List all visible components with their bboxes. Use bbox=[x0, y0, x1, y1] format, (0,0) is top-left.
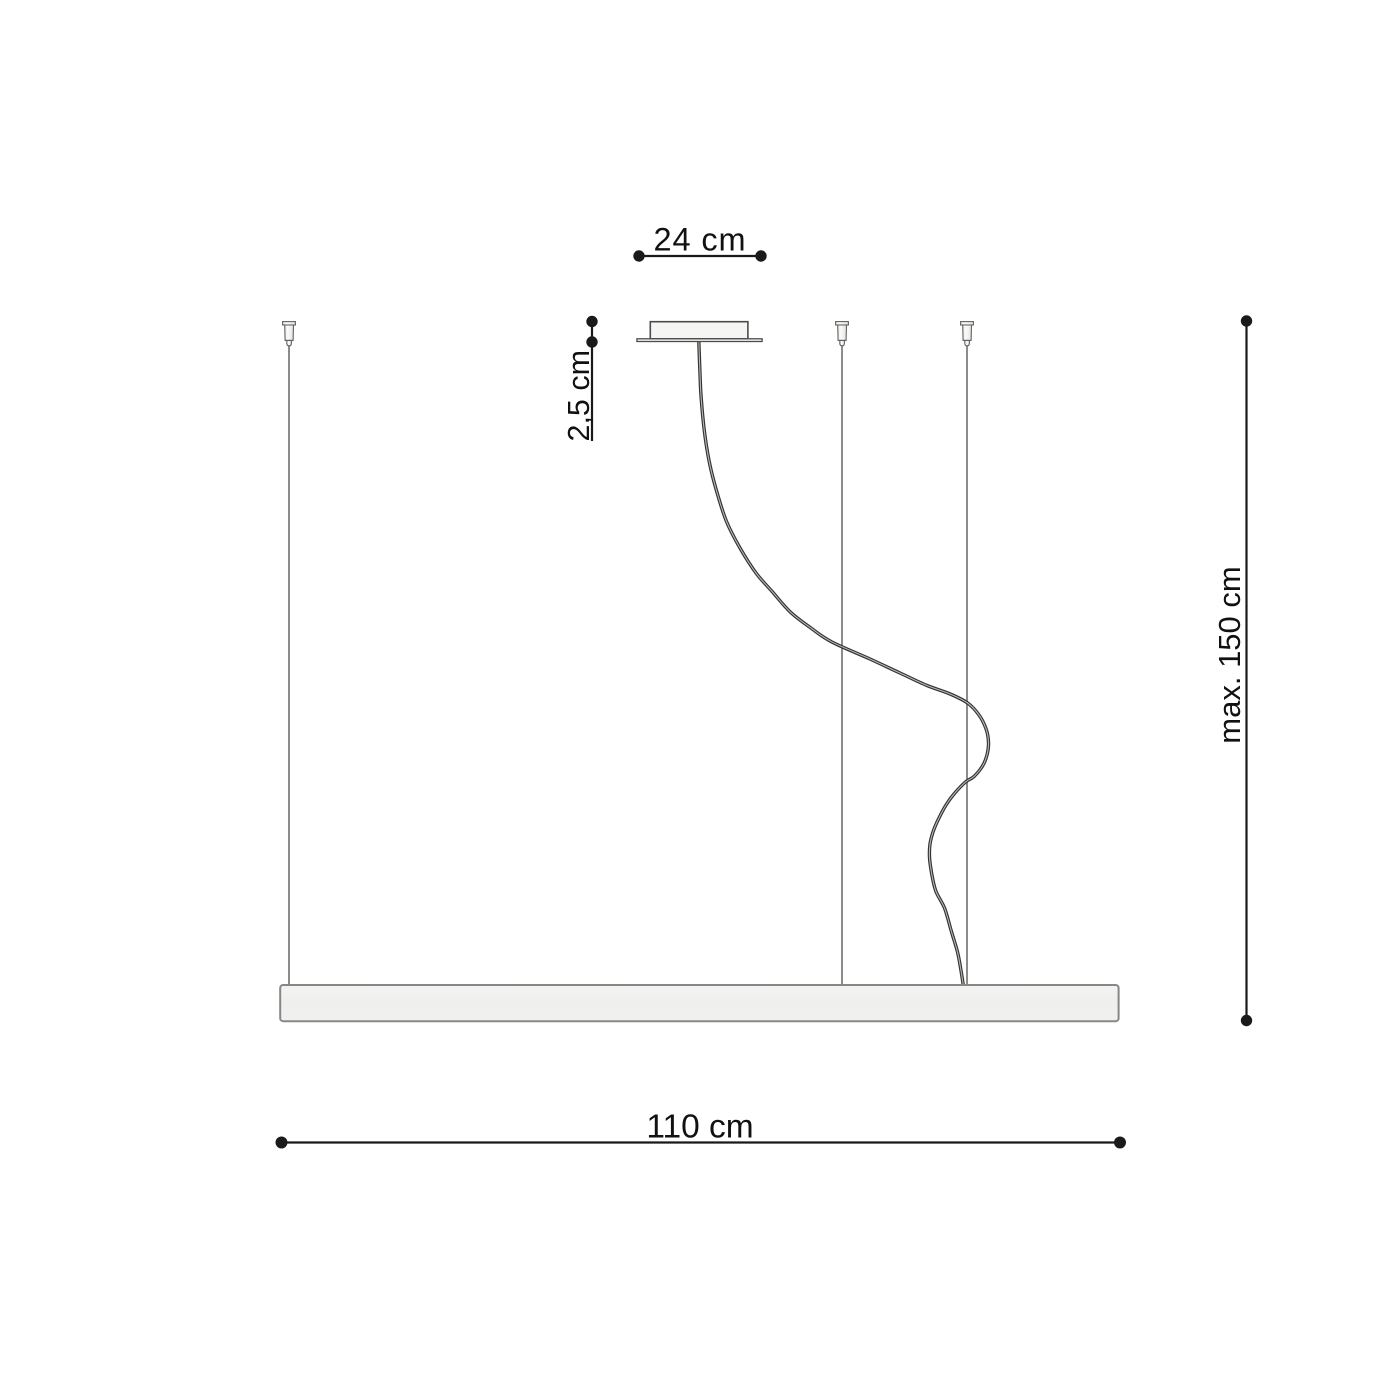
svg-text:max. 150 cm: max. 150 cm bbox=[1212, 566, 1247, 743]
svg-text:110 cm: 110 cm bbox=[646, 1109, 753, 1146]
svg-text:2,5 cm: 2,5 cm bbox=[562, 350, 596, 442]
svg-text:24 cm: 24 cm bbox=[653, 222, 746, 258]
